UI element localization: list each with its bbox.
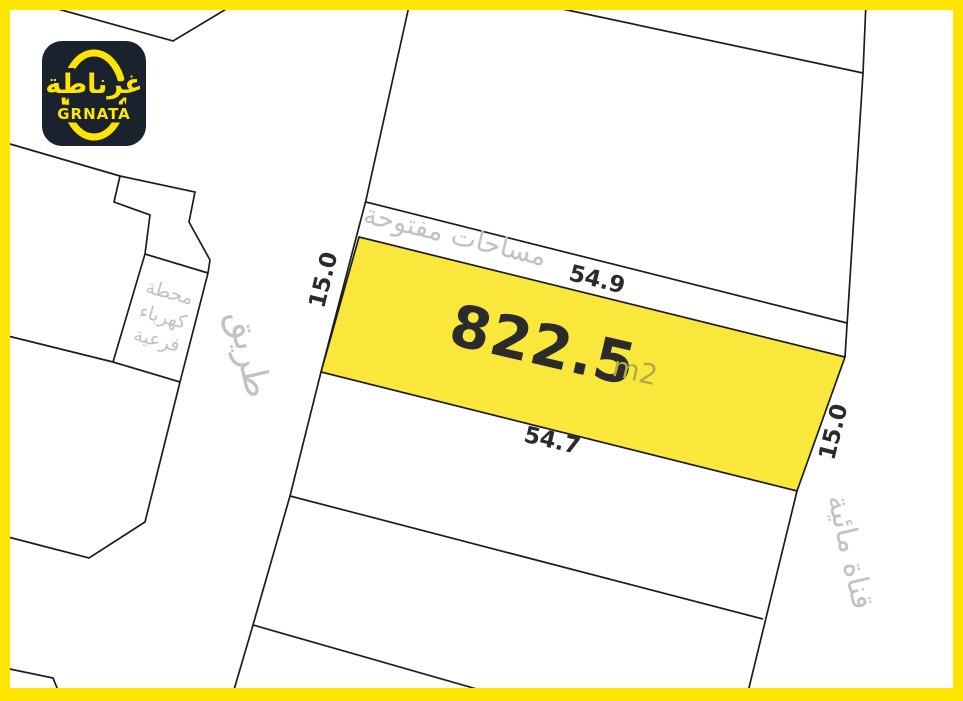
substation-bottom-edge xyxy=(113,362,180,382)
boundary-topright-diagonal xyxy=(553,7,863,73)
logo-arabic-wordmark: غرناطة xyxy=(45,69,142,100)
substation-top-edge xyxy=(145,254,208,273)
plot-divider-2 xyxy=(253,625,515,700)
boundary-left-mid xyxy=(8,336,113,362)
grnata-logo: غرناطة GRNATA xyxy=(42,41,146,146)
plot-divider-1 xyxy=(290,496,763,619)
boundary-left-parcel xyxy=(10,144,120,176)
grnata-logo-graphic: غرناطة GRNATA xyxy=(42,41,146,146)
boundary-right-upper xyxy=(845,2,866,357)
logo-latin-wordmark: GRNATA xyxy=(57,105,131,123)
boundary-bottomleft-notch xyxy=(0,667,62,700)
boundary-right-lower xyxy=(746,491,797,700)
boundary-topleft-v xyxy=(40,2,238,41)
substation-chimney xyxy=(120,176,210,273)
land-plot-map: مساحات مفتوحة طريق محطة كهرباء فرعية قنا… xyxy=(0,0,963,701)
